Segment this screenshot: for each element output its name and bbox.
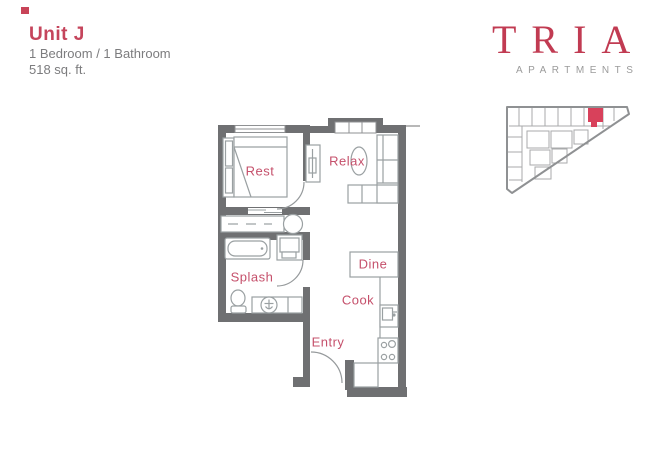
unit-title: Unit J xyxy=(29,24,85,46)
site-map-outline xyxy=(507,107,629,193)
kitchen-cabinet-icon xyxy=(354,363,378,387)
floorplan-page: Unit J 1 Bedroom / 1 Bathroom 518 sq. ft… xyxy=(0,0,650,450)
tv-unit-icon xyxy=(306,145,320,182)
toilet-icon xyxy=(231,290,246,313)
unit-location-marker xyxy=(588,107,603,127)
unit-area: 518 sq. ft. xyxy=(29,62,86,77)
building-site-map xyxy=(495,100,635,200)
room-label-bedroom: Rest xyxy=(246,164,275,179)
bathroom-door-icon xyxy=(277,260,303,286)
entry-door-icon xyxy=(311,352,342,383)
stove-icon xyxy=(378,338,398,363)
room-label-entry: Entry xyxy=(312,335,345,350)
shower-icon xyxy=(277,235,302,260)
header-accent-square xyxy=(21,7,29,14)
brand-logo-subtitle: APARTMENTS xyxy=(516,65,638,76)
brand-logo-name: TRIA xyxy=(492,20,645,60)
unit-specs: 1 Bedroom / 1 Bathroom xyxy=(29,46,171,61)
wardrobe-icon xyxy=(221,215,303,234)
bay-window-icon xyxy=(335,122,376,133)
floor-plan xyxy=(208,100,420,410)
kitchen-sink-icon xyxy=(380,305,398,327)
room-label-bathroom: Splash xyxy=(231,270,274,285)
bedroom-window-icon xyxy=(235,126,285,133)
room-label-dining: Dine xyxy=(359,257,388,272)
bathtub-icon xyxy=(225,238,270,259)
bathroom-sink-icon xyxy=(252,297,302,313)
closet-sliding-door-icon xyxy=(248,208,282,214)
room-label-kitchen: Cook xyxy=(342,293,374,308)
room-label-living: Relax xyxy=(329,154,365,169)
